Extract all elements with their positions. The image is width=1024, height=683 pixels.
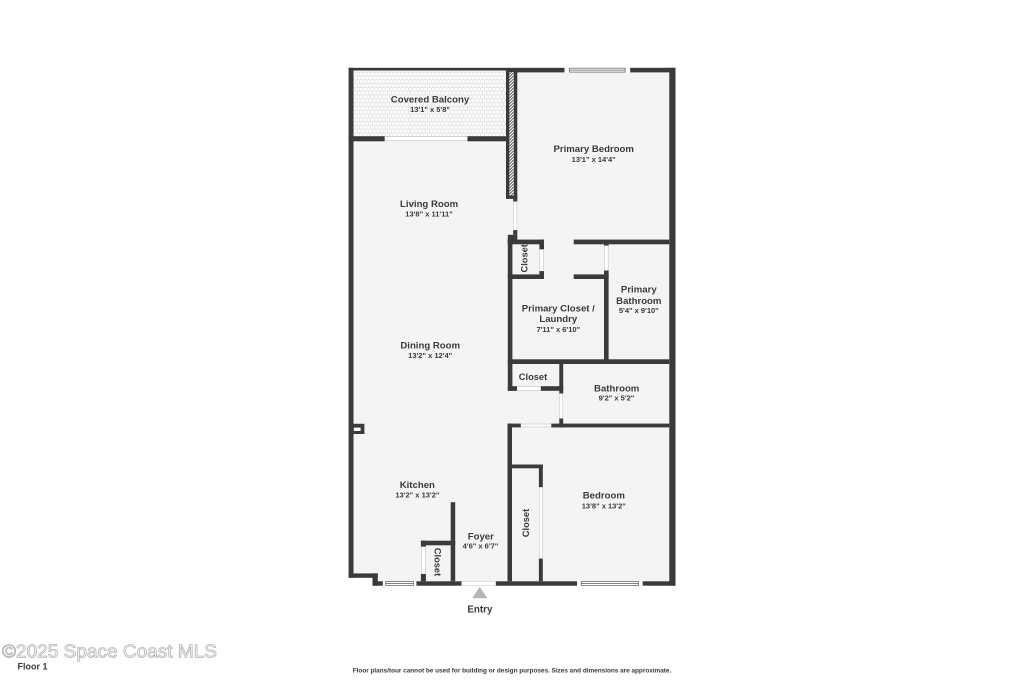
svg-text:Dining Room: Dining Room: [400, 340, 460, 351]
svg-text:Closet: Closet: [519, 372, 547, 382]
svg-text:Bedroom: Bedroom: [583, 491, 625, 502]
svg-text:Floor plans/tour cannot be use: Floor plans/tour cannot be used for buil…: [353, 668, 672, 675]
svg-text:13'8" x 13'2": 13'8" x 13'2": [582, 502, 626, 511]
svg-text:Bathroom: Bathroom: [594, 383, 639, 394]
svg-text:13'8" x 11'11": 13'8" x 11'11": [405, 209, 453, 218]
svg-text:Closet: Closet: [520, 244, 530, 272]
svg-text:13'2" x 13'2": 13'2" x 13'2": [395, 491, 439, 500]
svg-text:13'2" x 12'4": 13'2" x 12'4": [408, 351, 452, 360]
svg-text:Primary Bedroom: Primary Bedroom: [553, 144, 634, 155]
svg-text:Primary: Primary: [621, 285, 657, 296]
svg-text:7'11" x 6'10": 7'11" x 6'10": [536, 325, 580, 334]
svg-text:Covered Balcony: Covered Balcony: [391, 94, 470, 105]
svg-text:13'1" x 5'8": 13'1" x 5'8": [410, 105, 450, 114]
svg-text:4'6" x 6'7": 4'6" x 6'7": [463, 541, 499, 550]
svg-text:Closet: Closet: [521, 509, 531, 537]
svg-text:Laundry: Laundry: [539, 314, 578, 325]
svg-text:Entry: Entry: [467, 604, 493, 615]
svg-text:Floor 1: Floor 1: [18, 661, 48, 671]
svg-text:Living Room: Living Room: [400, 199, 458, 210]
svg-text:Primary Closet /: Primary Closet /: [522, 304, 595, 315]
svg-text:Closet: Closet: [433, 548, 443, 576]
svg-text:13'1" x 14'4": 13'1" x 14'4": [572, 155, 616, 164]
svg-text:©2025 Space Coast MLS: ©2025 Space Coast MLS: [2, 641, 217, 661]
svg-text:5'4" x 9'10": 5'4" x 9'10": [619, 306, 659, 315]
svg-text:9'2" x 5'2": 9'2" x 5'2": [599, 394, 635, 403]
svg-text:Kitchen: Kitchen: [400, 480, 435, 491]
